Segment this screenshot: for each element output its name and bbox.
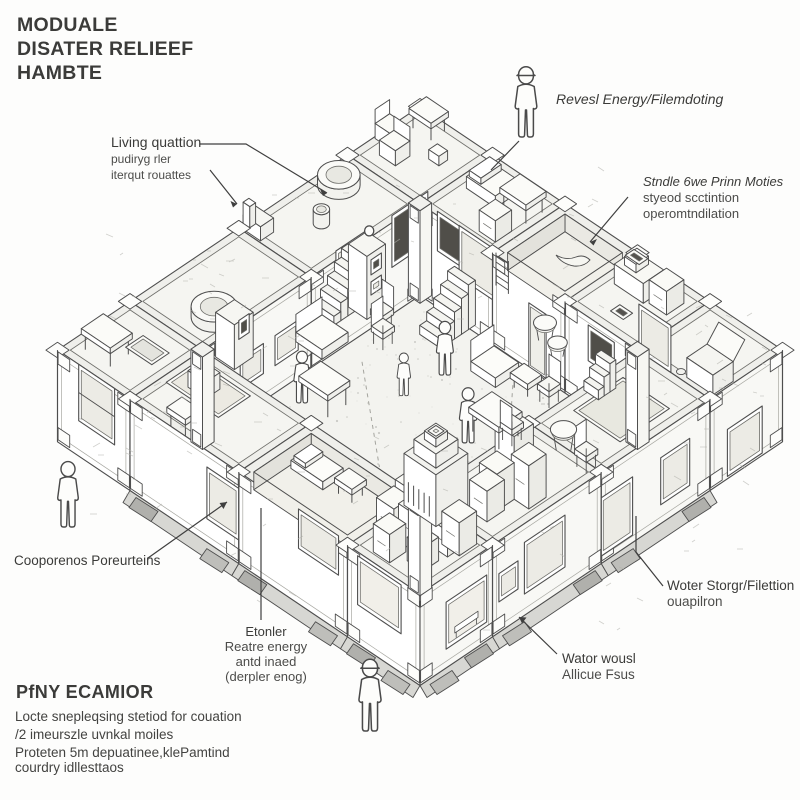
svg-text:pudiryg rler: pudiryg rler: [111, 152, 171, 166]
svg-text:Allicue Fsus: Allicue Fsus: [562, 667, 635, 682]
svg-text:Cooporenos Poreurteins: Cooporenos Poreurteins: [14, 553, 161, 568]
svg-text:DISATER RELIEEF: DISATER RELIEEF: [17, 38, 193, 60]
svg-text:operomtndilation: operomtndilation: [643, 206, 739, 221]
svg-text:antd inaed: antd inaed: [236, 654, 297, 669]
svg-text:Etonler: Etonler: [245, 624, 287, 639]
svg-text:Locte snepleqsing stetiod for: Locte snepleqsing stetiod for couation: [15, 709, 242, 724]
svg-text:courdry idllesttaos: courdry idllesttaos: [15, 760, 124, 775]
svg-text:Woter Storgr/Filettion: Woter Storgr/Filettion: [667, 578, 794, 593]
svg-text:MODUALE: MODUALE: [17, 14, 118, 36]
svg-text:Stndle 6we Prinn Moties: Stndle 6we Prinn Moties: [643, 174, 784, 189]
svg-text:Proteten 5m depuatinee,klePamt: Proteten 5m depuatinee,klePamtind: [15, 745, 230, 760]
svg-text:ouapilron: ouapilron: [667, 594, 723, 609]
svg-text:Revesl Energy/Filemdoting: Revesl Energy/Filemdoting: [556, 91, 724, 107]
svg-text:Wator wousl: Wator wousl: [562, 651, 636, 666]
svg-text:(derpler enog): (derpler enog): [225, 669, 307, 684]
svg-text:Reatre energy: Reatre energy: [225, 639, 308, 654]
svg-text:HAMBTE: HAMBTE: [17, 62, 102, 84]
svg-text:iterqut rouattes: iterqut rouattes: [111, 168, 191, 182]
svg-text:PfNY ECAMIOR: PfNY ECAMIOR: [16, 682, 153, 702]
svg-text:/2 imeurszle uvnkal moiles: /2 imeurszle uvnkal moiles: [15, 727, 174, 742]
svg-text:Living quattion: Living quattion: [111, 134, 201, 150]
svg-text:styeod scctintion: styeod scctintion: [643, 190, 739, 205]
